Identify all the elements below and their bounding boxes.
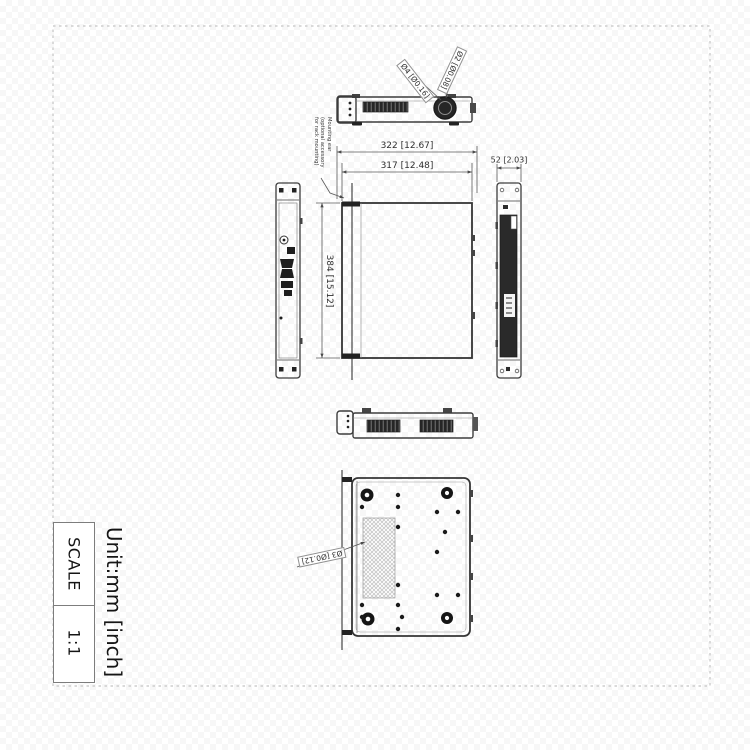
scale-label-cell: SCALE bbox=[54, 523, 94, 606]
front-vent-grille bbox=[363, 102, 408, 112]
rear-view bbox=[337, 408, 478, 438]
dim-body-width: 317 [12.48] bbox=[381, 161, 434, 171]
dimension-lines bbox=[316, 146, 521, 358]
dimension-drawing-page: 322 [12.67] 317 [12.48] 384 [15.12] 52 [… bbox=[0, 0, 750, 750]
scale-value: 1:1 bbox=[65, 629, 84, 656]
title-block: SCALE 1:1 bbox=[53, 522, 95, 683]
bottom-vent-hatch bbox=[363, 518, 395, 598]
scale-label: SCALE bbox=[65, 537, 84, 591]
dim-overall-width: 322 [12.67] bbox=[381, 141, 434, 151]
right-side-view bbox=[496, 183, 522, 378]
scale-value-cell: 1:1 bbox=[54, 606, 94, 680]
side-vent-band bbox=[500, 215, 517, 357]
dim-depth: 384 [15.12] bbox=[324, 255, 334, 308]
left-side-view bbox=[276, 183, 303, 378]
front-knob bbox=[434, 97, 456, 119]
unit-label: Unit:mm [inch] bbox=[102, 527, 126, 677]
plan-view bbox=[342, 183, 475, 380]
rear-connectors bbox=[280, 236, 296, 320]
mounting-ear-note: Mounting ear (optional accessory for rac… bbox=[312, 117, 332, 175]
dim-side-width: 52 [2.03] bbox=[491, 156, 528, 165]
